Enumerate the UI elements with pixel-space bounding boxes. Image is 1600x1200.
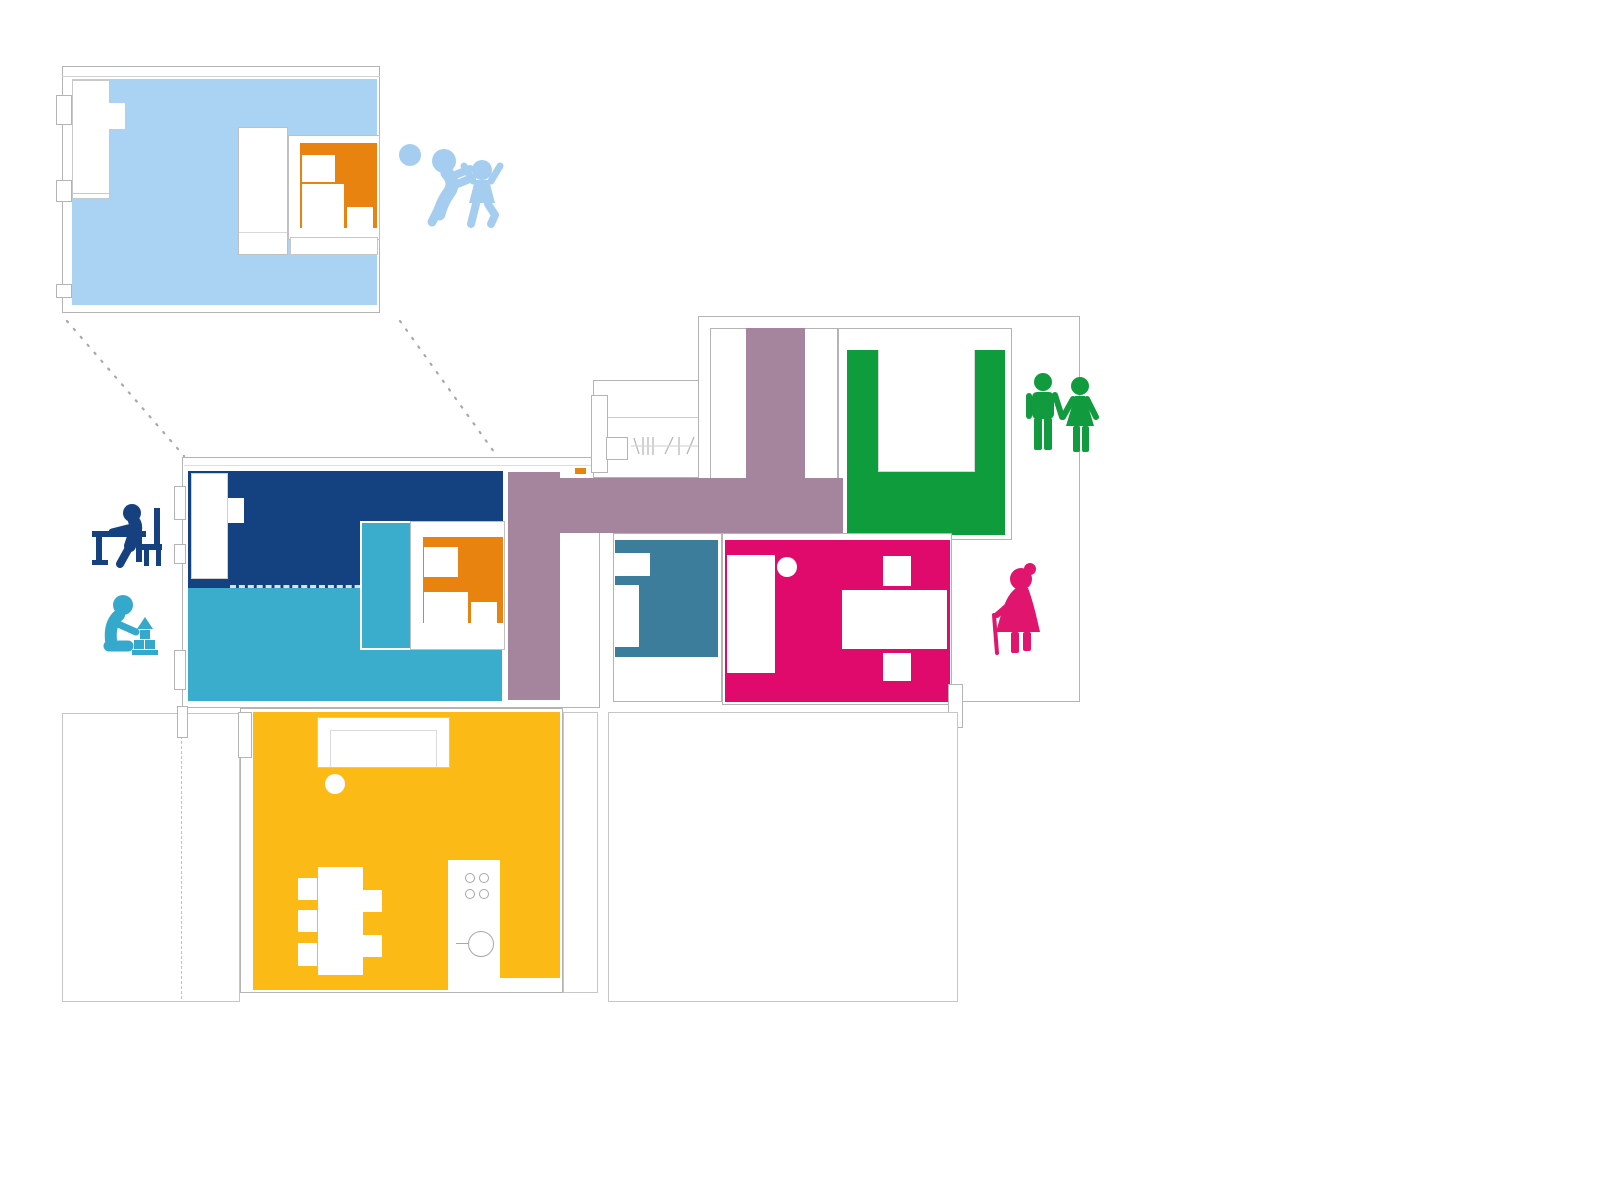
ball-icon [399,144,421,166]
detail-wardrobe [72,80,110,195]
cyan-desk-cutout-3 [471,602,497,623]
detail-desk-cutout-2 [302,184,344,228]
entry-door [606,437,628,460]
detail-bed [238,127,288,255]
detail-room-inner-wall-line [62,76,380,77]
stove-burner-4 [479,889,489,899]
left-block-inner-wall-line [184,465,598,466]
sofa-seat-lines [330,730,437,767]
hallway-vertical-arm [746,328,805,478]
block-tower-icon [137,617,153,629]
terrace-left-outline [62,713,240,1002]
navy-wardrobe [191,473,228,579]
stove-burner-1 [465,873,475,883]
detail-wardrobe-notch [108,103,125,129]
dining-chair-left-3 [298,943,317,966]
left-window-stub-1 [174,486,186,520]
child-at-desk-figure [92,502,164,568]
detail-desk-cutout-3 [347,207,373,228]
floor-plan-canvas [0,0,1600,1200]
entry-wall-stub [591,395,608,473]
cane-icon [994,615,997,653]
elderly-woman-figure [984,558,1050,658]
couple-figures [1024,372,1104,472]
cyan-desk-cutout-1 [424,547,458,577]
detail-bed-footline [239,232,287,233]
navy-wardrobe-notch [228,498,244,523]
woman-icon [1071,377,1089,395]
kitchen-sink [468,931,494,957]
detail-shelf [72,193,110,199]
chair-icon [154,508,160,550]
hair-bun-icon [1024,563,1036,575]
dining-table [318,867,363,975]
bathroom-fixture-2 [615,585,639,647]
entry-hall-outline [593,380,712,478]
magenta-chair-bottom [883,653,911,681]
desk-icon [92,531,146,537]
left-window-stub-2 [174,544,186,564]
magenta-lamp [777,557,797,577]
living-lamp [325,774,345,794]
magenta-table [842,590,947,649]
terrace-wall-stub [177,706,188,738]
magenta-bed [727,555,775,673]
porch-strip-outline [563,712,598,993]
left-window-stub-3 [174,650,186,690]
living-wall-stub [238,712,252,758]
entry-inner-wall-line [608,417,712,418]
cyan-desk-cutout-2 [424,592,468,623]
man-icon [1034,373,1052,391]
hallway-lower-strip [508,472,560,700]
dining-chair-left-1 [298,878,317,900]
dining-chair-left-2 [298,910,317,932]
detail-window-stub-1 [56,95,72,125]
terrace-south-outline [608,712,958,1002]
detail-window-stub-3 [56,284,72,298]
cyan-bed [362,523,410,648]
children-playing-figures [398,136,506,232]
living-bottom-notch [500,978,560,990]
sink-faucet-line [456,943,469,944]
detail-desk-cutout-1 [302,155,335,182]
dining-chair-right-1 [363,890,382,912]
green-double-bed [878,350,975,472]
stove-burner-2 [479,873,489,883]
stove-burner-3 [465,889,475,899]
child-with-blocks-figure [102,594,160,658]
bathroom-fixture-1 [615,553,650,576]
magenta-chair-top [883,556,911,586]
detail-window-stub-2 [56,180,72,202]
terrace-left-dashed-line [181,716,182,999]
entry-threshold [575,468,586,474]
dining-chair-right-2 [363,935,382,957]
sofa [317,717,450,768]
detail-bench [290,237,378,255]
